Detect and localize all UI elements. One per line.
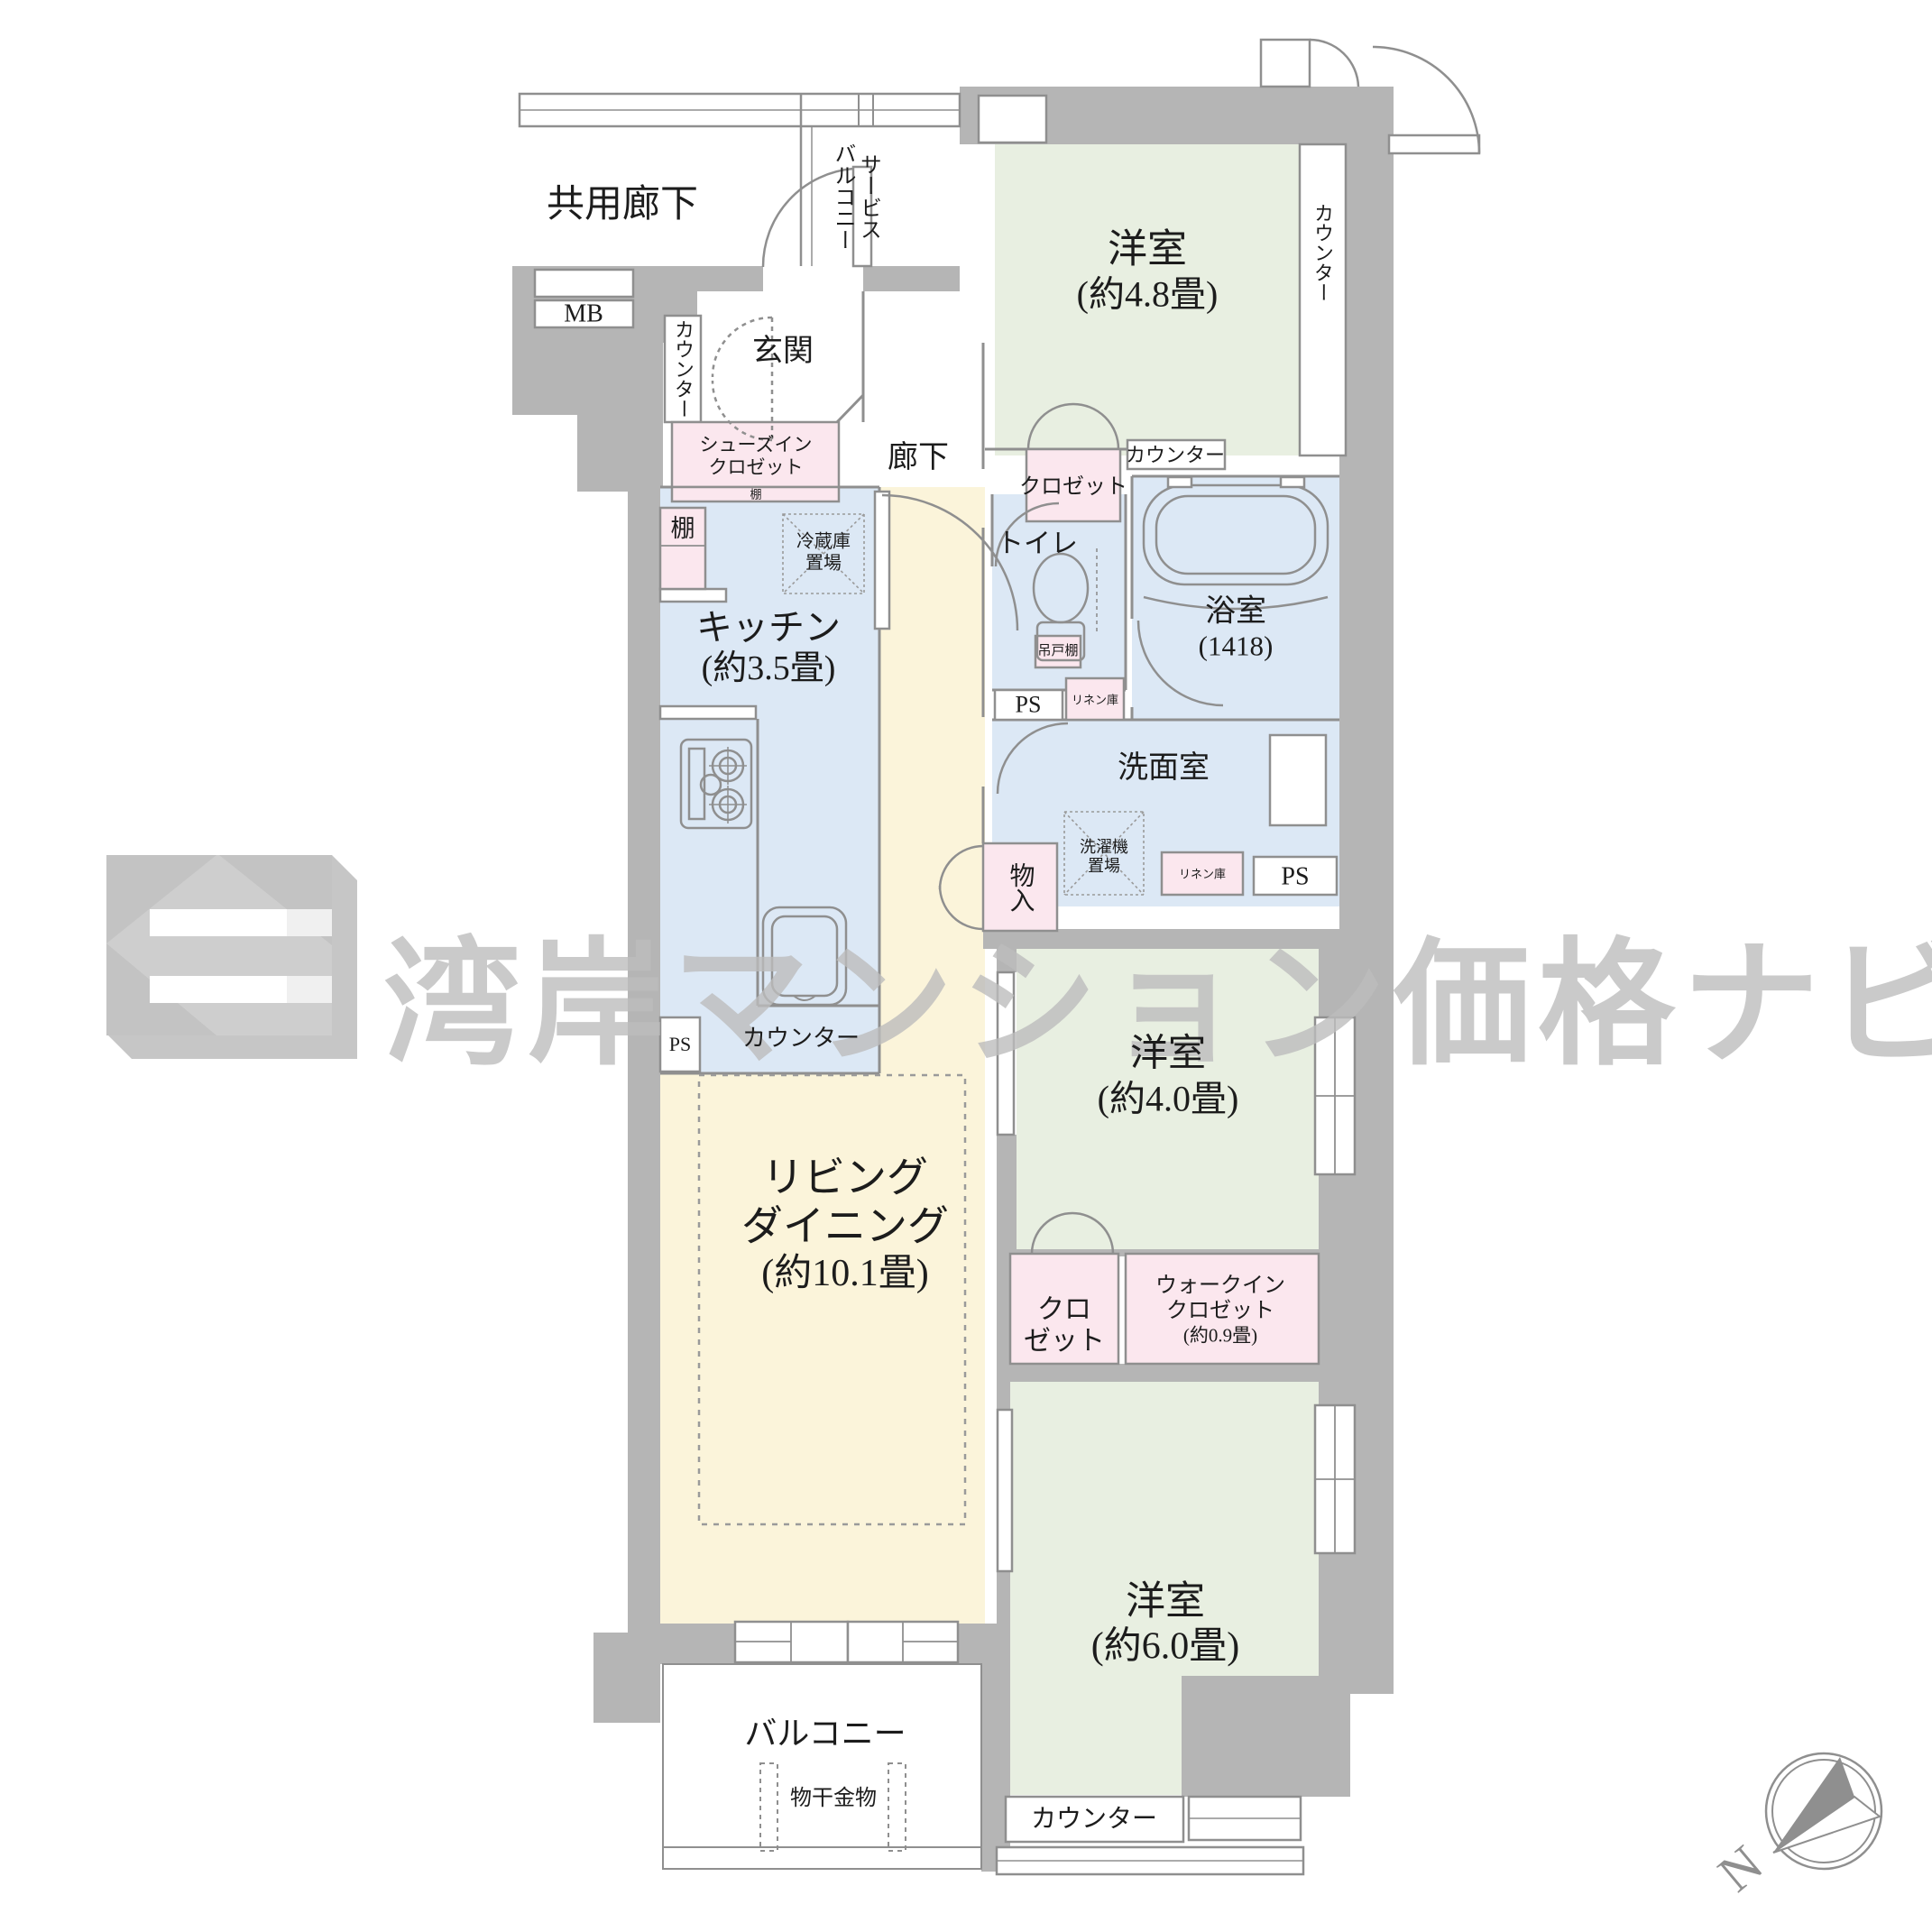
label-service-balcony: サービス バルコニー bbox=[830, 143, 881, 251]
label-entrance-counter: カウンター bbox=[671, 319, 695, 419]
label-toilet: トイレ bbox=[997, 528, 1078, 559]
label-common-corridor: 共用廊下 bbox=[547, 183, 698, 228]
label-closet-48: クロゼット bbox=[1019, 474, 1127, 500]
label-washroom: 洗面室 bbox=[1118, 750, 1210, 787]
labels-layer: 共用廊下 サービス バルコニー MB 玄関 カウンター シューズイン クロゼット… bbox=[0, 0, 1932, 1932]
label-fridge: 冷蔵庫 置場 bbox=[796, 531, 851, 574]
label-linen-top: リネン庫 bbox=[1072, 693, 1118, 706]
label-shoes-closet: シューズイン クロゼット bbox=[700, 434, 813, 479]
compass-north-label: N bbox=[1707, 1833, 1775, 1904]
label-counter-48-side: カウンター bbox=[1311, 203, 1334, 302]
floorplan-page: 湾岸マンション価格ナビ 共用廊下 サービス バルコニー MB 玄関 カウンター … bbox=[0, 0, 1932, 1932]
label-balcony: バルコニー bbox=[744, 1715, 906, 1753]
label-storage: 物入 bbox=[1005, 862, 1035, 913]
label-ps-bottom: PS bbox=[1281, 861, 1309, 891]
label-mb: MB bbox=[564, 299, 603, 328]
label-closet-40: クロ ゼット bbox=[1024, 1294, 1105, 1358]
label-entrance: 玄関 bbox=[752, 334, 814, 370]
label-shoes-shelf: 棚 bbox=[750, 487, 761, 501]
label-counter-bottom: カウンター bbox=[1031, 1804, 1157, 1834]
label-hanging-cupboard: 吊戸棚 bbox=[1037, 644, 1078, 660]
label-counter-48-bottom: カウンター bbox=[1126, 444, 1225, 467]
label-room-48: 洋室 (約4.8畳) bbox=[1077, 225, 1219, 315]
label-laundry-hardware: 物干金物 bbox=[790, 1786, 877, 1811]
label-linen-bottom: リネン庫 bbox=[1179, 867, 1226, 880]
label-washing-machine: 洗濯機 置場 bbox=[1080, 838, 1128, 876]
label-counter-kitchen: カウンター bbox=[742, 1026, 860, 1053]
label-room-60: 洋室 (約6.0畳) bbox=[1091, 1578, 1239, 1669]
label-corridor: 廊下 bbox=[888, 440, 949, 476]
label-wic: ウォークイン クロゼット (約0.9畳) bbox=[1155, 1273, 1285, 1346]
label-ps-toilet: PS bbox=[1016, 692, 1042, 720]
label-living: リビング ダイニング (約10.1畳) bbox=[741, 1154, 949, 1296]
label-ps-kitchen: PS bbox=[669, 1033, 691, 1056]
label-room-40: 洋室 (約4.0畳) bbox=[1098, 1033, 1239, 1120]
label-kitchen-shelf: 棚 bbox=[671, 515, 695, 544]
label-kitchen: キッチン (約3.5畳) bbox=[696, 606, 841, 689]
label-bath: 浴室 (1418) bbox=[1199, 594, 1274, 664]
